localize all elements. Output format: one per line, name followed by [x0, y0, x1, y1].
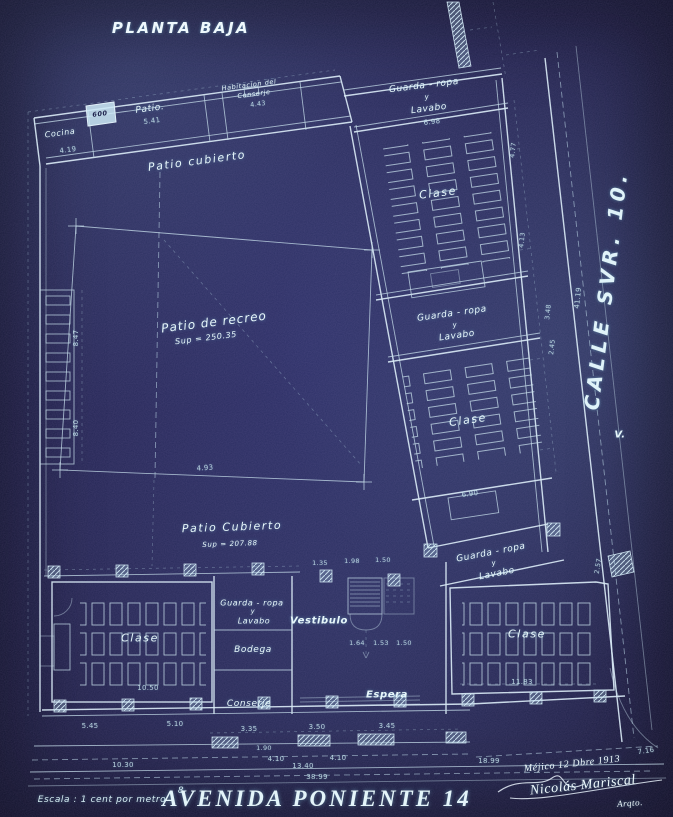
- label-clase-br: Clase: [508, 628, 546, 641]
- label-vestibulo: Vestibulo: [290, 616, 348, 627]
- dim-text: 11.83: [511, 678, 533, 686]
- label-bodega: Bodega: [234, 645, 272, 655]
- page-title: PLANTA BAJA: [112, 19, 250, 37]
- scale-note: Escala : 1 cent por metro: [38, 795, 167, 805]
- dim-text: 5.45: [82, 722, 99, 730]
- label-lavabo-4: Lavabo: [238, 617, 271, 626]
- dim-text: 1.64: [349, 639, 365, 647]
- dim-text: 4.10: [330, 754, 347, 762]
- dim-text: 4.10: [268, 755, 285, 763]
- dim-text: 4.77: [508, 142, 518, 158]
- label-guardarropa-4-y: y: [251, 607, 255, 615]
- dim-text: 10.30: [112, 761, 134, 769]
- north-v-mark: V.: [614, 430, 625, 441]
- dim-text: 3.35: [241, 725, 258, 733]
- dim-text: 13.40: [292, 762, 314, 770]
- dim-text: 3.45: [379, 722, 396, 730]
- dim-text: 2.45: [547, 339, 557, 355]
- label-espera: Espera: [366, 690, 408, 701]
- dim-text: 10.50: [137, 684, 159, 692]
- dim-text: 1.90: [256, 744, 272, 752]
- dim-text: 3.50: [309, 723, 326, 731]
- dim-text: 1.50: [396, 639, 412, 647]
- dim-text: 1.50: [375, 556, 391, 564]
- dim-text: 8.40: [72, 420, 80, 437]
- dim-text: 3.48: [543, 304, 553, 320]
- dim-text: 8.47: [72, 330, 80, 347]
- label-guardarropa-2-y: y: [452, 321, 458, 330]
- dim-text: 18.99: [478, 757, 500, 765]
- dim-text: 1.35: [312, 559, 328, 567]
- dim-text: 38.99: [306, 773, 328, 781]
- label-guardarropa-1-y: y: [424, 93, 430, 102]
- dim-text: 1.98: [344, 557, 360, 565]
- signature-title: Arqto.: [617, 797, 644, 809]
- dim-text: 4.13: [517, 232, 527, 248]
- label-clase-bl: Clase: [121, 632, 159, 645]
- label-conserje: Conserje: [227, 699, 271, 709]
- dim-text: 5.10: [167, 720, 184, 728]
- label-avenida: AVENIDA PONIENTE 14: [162, 786, 472, 812]
- dim-text: 4.93: [196, 463, 213, 472]
- plan-linework: [0, 0, 673, 817]
- blueprint-sheet: PLANTA BAJA Cocina 600 Patio. 5.41 4.19 …: [0, 0, 673, 817]
- label-guardarropa-3-y: y: [491, 559, 497, 568]
- grain-overlay: [0, 0, 673, 817]
- dim-text: 1.53: [373, 639, 389, 647]
